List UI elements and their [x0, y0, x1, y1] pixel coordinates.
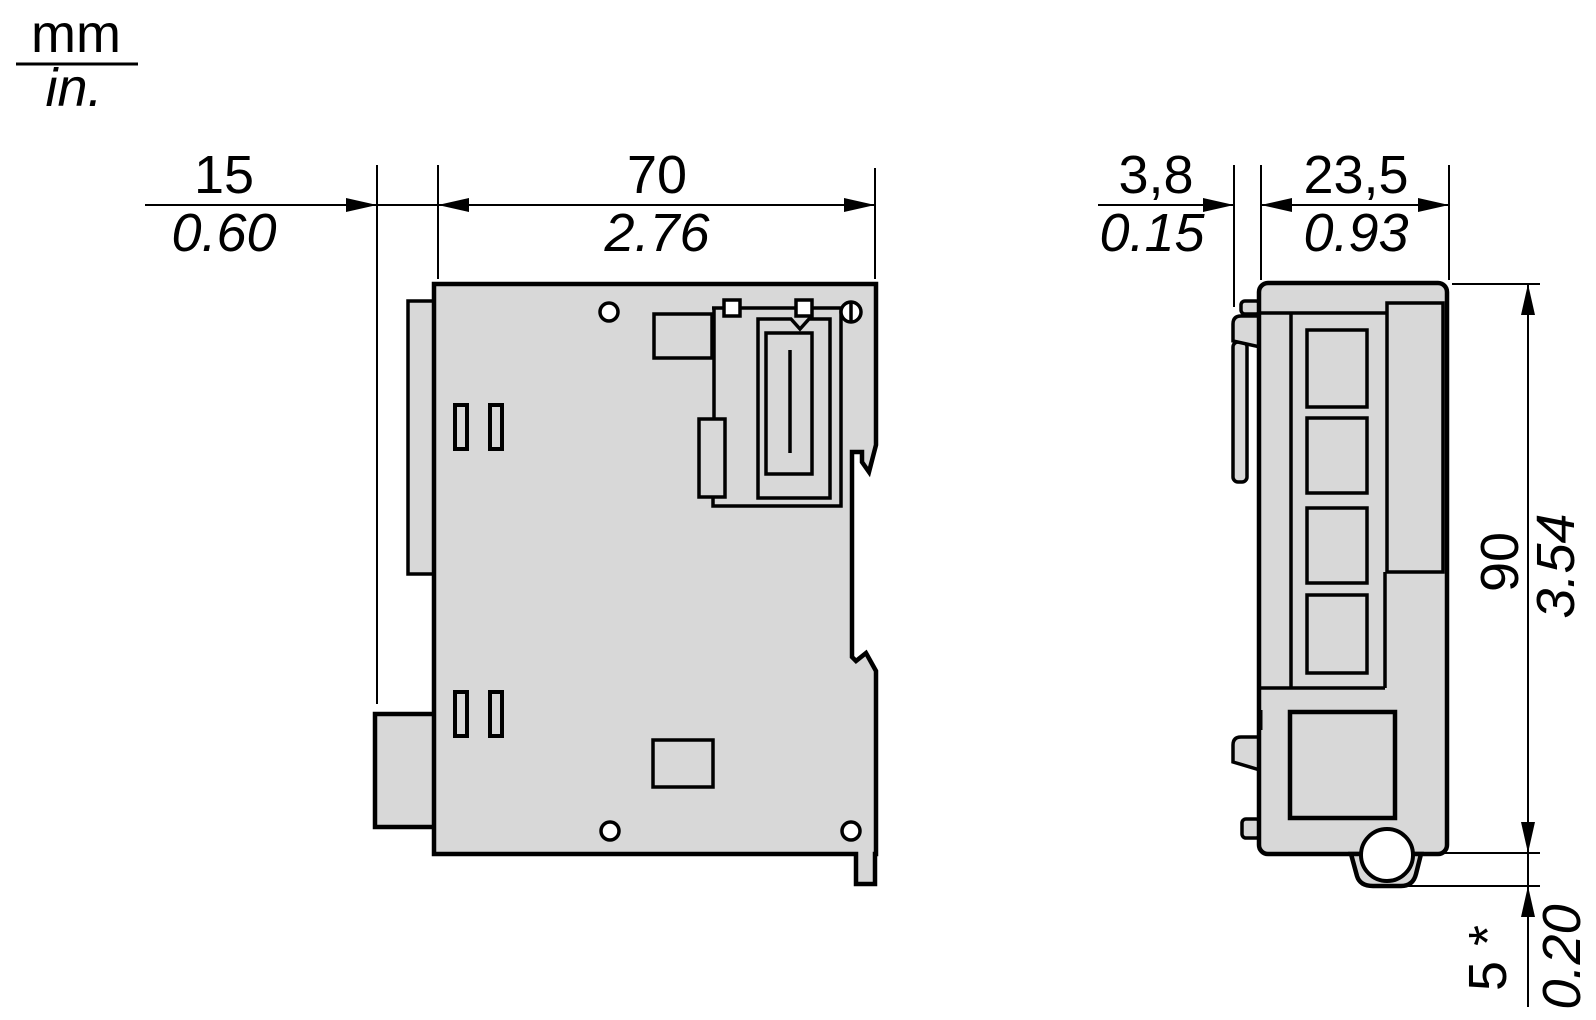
front-view-module: [1233, 283, 1447, 886]
module-body-outline: [434, 284, 876, 884]
mounting-ear-hole: [1361, 829, 1413, 881]
side-rail-strip: [1233, 342, 1247, 482]
unit-in-label: in.: [45, 58, 102, 118]
side-clip-tab-top: [1233, 316, 1260, 347]
right-column-panel: [1387, 303, 1443, 572]
vent-slot: [490, 405, 502, 449]
front-view: 3,8 0.15 23,5 0.93: [1098, 145, 1592, 1010]
arrowhead-right-icon: [844, 198, 875, 212]
vent-slot: [490, 692, 502, 736]
dim-clip-depth-mm: 15: [194, 145, 254, 205]
arrowhead-left-icon: [438, 198, 469, 212]
mounting-hole-bottom-right: [842, 822, 860, 840]
unit-legend: mm in.: [16, 4, 138, 118]
detail-square-right: [796, 300, 812, 316]
dim-clip-width-in: 0.15: [1099, 203, 1205, 263]
dim-body-height-mm: 90: [1470, 532, 1530, 592]
terminal-block: [1307, 508, 1367, 583]
arrowhead-up-icon: [1521, 284, 1535, 315]
arrowhead-right-icon: [346, 198, 377, 212]
side-view: 15 0.60 70 2.76: [145, 145, 876, 884]
dim-body-width-mm: 23,5: [1303, 145, 1408, 205]
side-clip-tab-middle: [1233, 737, 1260, 770]
arrowhead-left-icon: [1261, 198, 1292, 212]
dim-ear-height-in: 0.20: [1532, 904, 1592, 1009]
terminal-block: [1307, 330, 1367, 407]
connector-port-square: [1290, 712, 1395, 818]
vent-slot: [455, 692, 467, 736]
dim-ear-height-mm: 5 *: [1458, 925, 1518, 991]
arrowhead-right-icon: [1418, 198, 1449, 212]
terminal-block: [1307, 418, 1367, 493]
dimension-drawing-page: mm in. 15 0.60 70 2.76: [0, 0, 1596, 1020]
dim-clip-depth-in: 0.60: [171, 203, 276, 263]
vent-slot: [455, 405, 467, 449]
dim-clip-width-mm: 3,8: [1118, 145, 1193, 205]
detail-square-left: [724, 300, 740, 316]
dim-body-depth-mm: 70: [627, 145, 687, 205]
mounting-hole-top: [600, 303, 618, 321]
dim-body-height-in: 3.54: [1526, 513, 1586, 618]
dim-body-width-in: 0.93: [1303, 203, 1408, 263]
terminal-block: [1307, 595, 1367, 673]
arrowhead-right-icon: [1203, 198, 1234, 212]
dim-body-depth-in: 2.76: [603, 203, 710, 263]
rear-clip-lower: [375, 714, 436, 827]
arrowhead-down-icon: [1521, 822, 1535, 853]
mounting-hole-bottom-left: [601, 822, 619, 840]
unit-mm-label: mm: [31, 4, 121, 64]
drawing-canvas: mm in. 15 0.60 70 2.76: [0, 0, 1596, 1020]
side-view-module: [375, 284, 876, 884]
